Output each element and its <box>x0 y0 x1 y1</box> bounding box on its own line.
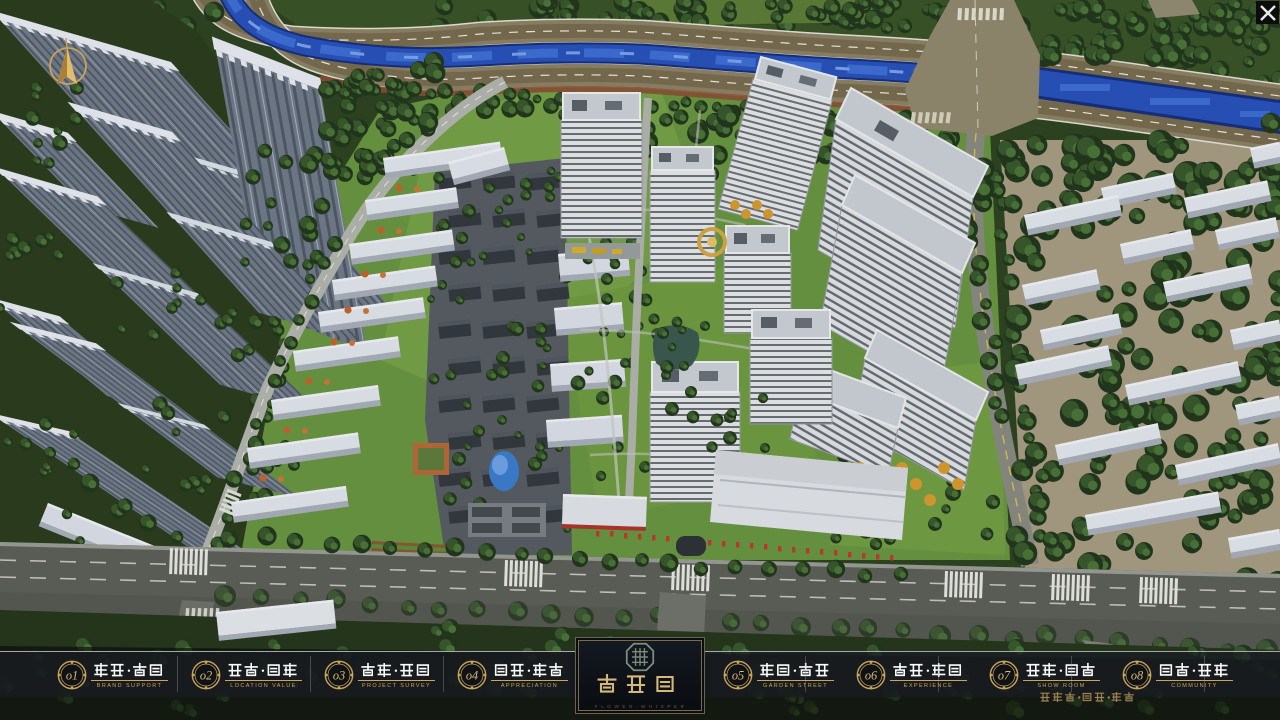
svg-text:o6: o6 <box>865 668 878 682</box>
svg-text:o8: o8 <box>1131 668 1144 682</box>
svg-text:o7: o7 <box>998 668 1011 682</box>
svg-text:o2: o2 <box>200 668 212 682</box>
svg-text:o5: o5 <box>732 668 744 682</box>
svg-text:o3: o3 <box>333 668 345 682</box>
svg-text:o1: o1 <box>66 668 78 682</box>
svg-text:o4: o4 <box>466 668 478 682</box>
